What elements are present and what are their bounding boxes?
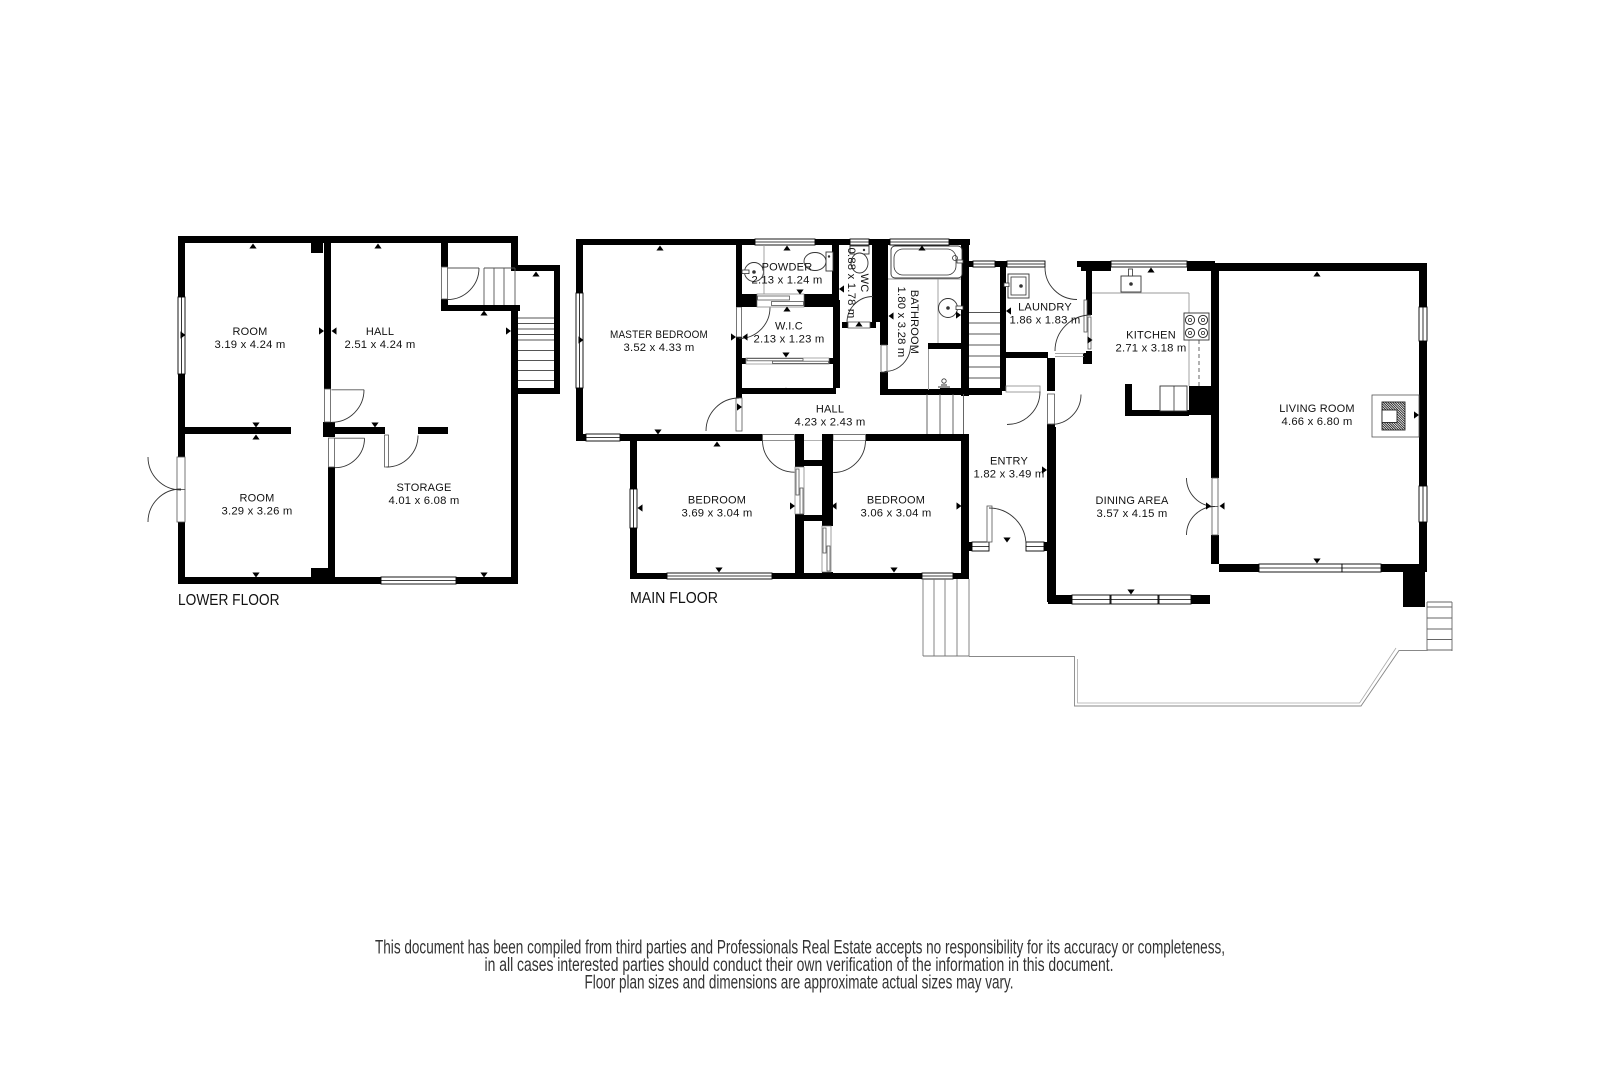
- svg-text:MASTER BEDROOM: MASTER BEDROOM: [610, 329, 708, 341]
- svg-text:BEDROOM: BEDROOM: [688, 495, 746, 507]
- svg-text:LAUNDRY: LAUNDRY: [1018, 302, 1072, 314]
- svg-text:HALL: HALL: [366, 326, 394, 338]
- svg-text:4.01 x 6.08 m: 4.01 x 6.08 m: [389, 495, 460, 507]
- svg-text:BATHROOM: BATHROOM: [908, 290, 920, 354]
- svg-text:POWDER: POWDER: [762, 262, 813, 274]
- svg-text:LOWER FLOOR: LOWER FLOOR: [178, 592, 280, 609]
- svg-text:Floor plan sizes and dimension: Floor plan sizes and dimensions are appr…: [585, 973, 1014, 994]
- svg-text:DINING AREA: DINING AREA: [1095, 495, 1169, 507]
- svg-text:3.29 x 3.26 m: 3.29 x 3.26 m: [222, 506, 293, 518]
- svg-text:KITCHEN: KITCHEN: [1126, 330, 1176, 342]
- svg-text:3.69 x 3.04 m: 3.69 x 3.04 m: [682, 508, 753, 520]
- svg-text:2.51 x 4.24 m: 2.51 x 4.24 m: [345, 339, 416, 351]
- svg-text:2.13 x 1.24 m: 2.13 x 1.24 m: [752, 275, 823, 287]
- svg-text:2.13 x 1.23 m: 2.13 x 1.23 m: [754, 334, 825, 346]
- svg-text:ENTRY: ENTRY: [990, 456, 1029, 468]
- svg-text:1.86 x 1.83 m: 1.86 x 1.83 m: [1010, 315, 1081, 327]
- svg-text:4.66 x 6.80 m: 4.66 x 6.80 m: [1282, 416, 1353, 428]
- svg-text:BEDROOM: BEDROOM: [867, 495, 925, 507]
- svg-text:2.71 x 3.18 m: 2.71 x 3.18 m: [1116, 343, 1187, 355]
- svg-text:3.19 x 4.24 m: 3.19 x 4.24 m: [215, 339, 286, 351]
- svg-text:LIVING ROOM: LIVING ROOM: [1279, 403, 1355, 415]
- svg-text:4.23 x 2.43 m: 4.23 x 2.43 m: [795, 417, 866, 429]
- svg-text:WC: WC: [858, 274, 870, 293]
- svg-text:ROOM: ROOM: [232, 326, 267, 338]
- svg-text:1.80 x 3.28 m: 1.80 x 3.28 m: [895, 287, 907, 358]
- svg-text:W.I.C: W.I.C: [775, 321, 803, 333]
- svg-text:STORAGE: STORAGE: [397, 482, 452, 494]
- svg-text:HALL: HALL: [816, 404, 844, 416]
- svg-text:ROOM: ROOM: [239, 493, 274, 505]
- svg-text:0.88 x 1.78 m: 0.88 x 1.78 m: [845, 248, 857, 319]
- svg-text:3.57 x 4.15 m: 3.57 x 4.15 m: [1097, 508, 1168, 520]
- svg-text:MAIN FLOOR: MAIN FLOOR: [630, 590, 718, 607]
- svg-text:3.06 x 3.04 m: 3.06 x 3.04 m: [861, 508, 932, 520]
- svg-text:1.82 x 3.49 m: 1.82 x 3.49 m: [974, 469, 1045, 481]
- svg-text:3.52 x 4.33 m: 3.52 x 4.33 m: [624, 342, 695, 354]
